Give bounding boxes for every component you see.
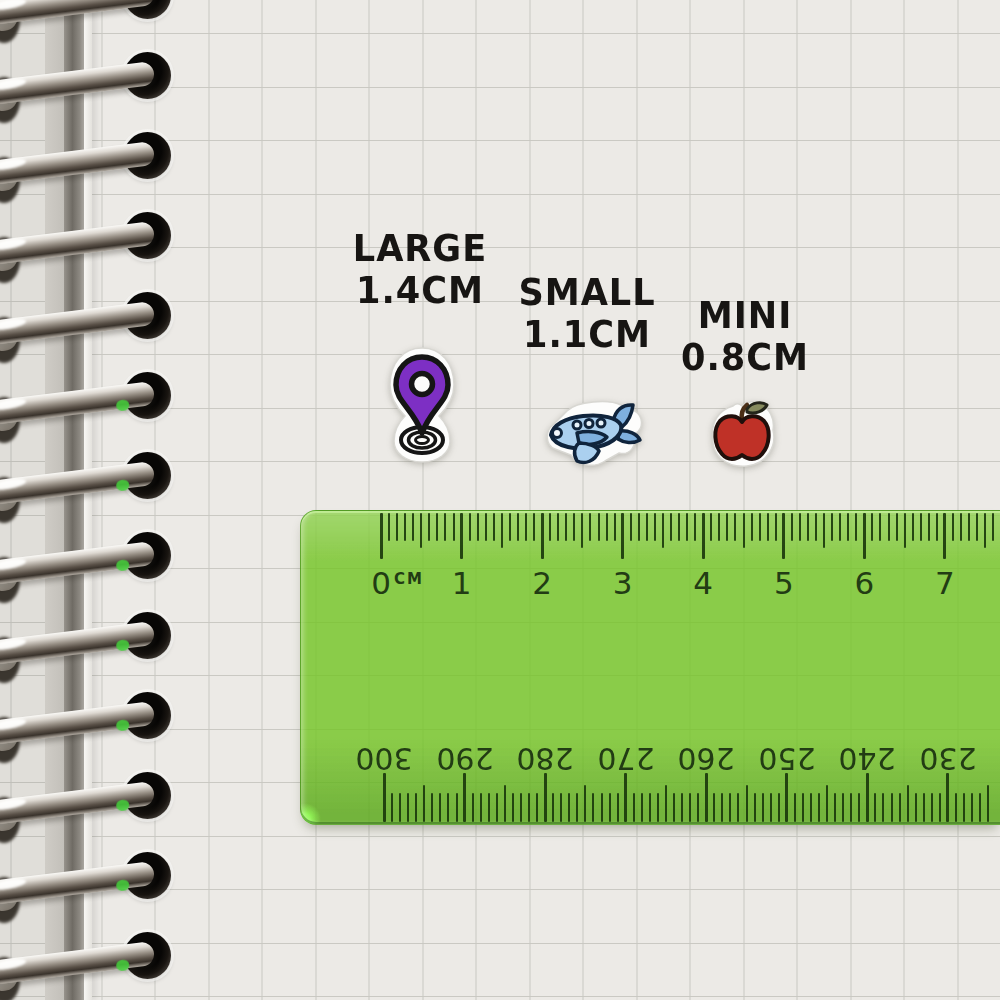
ring-glint xyxy=(0,477,27,492)
ring-glint xyxy=(0,237,27,252)
ruler-mm-number: 250 xyxy=(747,741,827,776)
ruler-tick-mm xyxy=(915,793,917,822)
ruler-tick-mm xyxy=(879,513,881,541)
ring-glint xyxy=(0,157,27,172)
ruler-tick-mm xyxy=(472,793,474,822)
ruler-tick-mm xyxy=(589,513,591,541)
ruler-tick-mm xyxy=(904,513,906,548)
ruler-tick-mm xyxy=(694,513,696,541)
ruler-tick-mm xyxy=(807,513,809,541)
ruler-tick-mm xyxy=(552,793,554,822)
ruler-tick-mm xyxy=(955,793,957,822)
ruler-tick-mm xyxy=(654,513,656,541)
ruler-tick-mm xyxy=(971,793,973,822)
ruler-tick-mm xyxy=(960,513,962,541)
ruler-tick-cm xyxy=(544,773,547,822)
ruler-tick-cm xyxy=(380,513,383,559)
ruler-tick-cm xyxy=(782,513,785,559)
ruler-tick-mm xyxy=(536,793,538,822)
ruler-tick-mm xyxy=(976,513,978,541)
ruler-tick-cm xyxy=(785,773,788,822)
ruler-tick-mm xyxy=(520,793,522,822)
ruler-cm-number: 0 xyxy=(351,565,411,601)
ring-green-reflection xyxy=(116,959,130,972)
ruler-tick-mm xyxy=(839,513,841,541)
ruler-tick-mm xyxy=(689,793,691,822)
ruler-tick-mm xyxy=(415,793,417,822)
ruler-tick-mm xyxy=(826,785,828,822)
ruler-tick-mm xyxy=(581,513,583,548)
apple-icon xyxy=(709,398,775,471)
ruler-tick-mm xyxy=(923,793,925,822)
ruler-tick-mm xyxy=(657,793,659,822)
ruler-tick-mm xyxy=(584,785,586,822)
ruler-tick-mm xyxy=(630,513,632,541)
ruler-tick-mm xyxy=(762,793,764,822)
ruler-tick-mm xyxy=(431,793,433,822)
ruler-tick-mm xyxy=(601,793,603,822)
ruler-cm-number: 1 xyxy=(432,565,492,601)
ruler-tick-mm xyxy=(896,513,898,541)
spiral-binding xyxy=(0,0,190,1000)
ruler-tick-mm xyxy=(882,793,884,822)
ruler-tick-mm xyxy=(509,513,511,541)
ruler-tick-mm xyxy=(391,793,393,822)
ruler-tick-mm xyxy=(528,793,530,822)
ruler-tick-mm xyxy=(746,785,748,822)
ring-green-reflection xyxy=(116,799,130,812)
ruler-tick-mm xyxy=(598,513,600,541)
ring-green-reflection xyxy=(116,399,130,412)
ruler-tick-mm xyxy=(439,793,441,822)
ruler-tick-mm xyxy=(850,793,852,822)
ruler-tick-mm xyxy=(968,513,970,541)
ruler-tick-mm xyxy=(399,793,401,822)
ruler-tick-mm xyxy=(423,785,425,822)
ruler-cm-number: 5 xyxy=(754,565,814,601)
ruler-tick-mm xyxy=(713,793,715,822)
ruler-tick-mm xyxy=(810,793,812,822)
ruler-tick-mm xyxy=(920,513,922,541)
notebook-photo: LARGE 1.4CM SMALL 1.1CM MINI 0.8CM xyxy=(0,0,1000,1000)
ruler-tick-mm xyxy=(754,793,756,822)
ruler-mm-number: 230 xyxy=(908,741,988,776)
ruler-tick-mm xyxy=(646,513,648,541)
ring-glint xyxy=(0,317,27,332)
ruler-tick-mm xyxy=(665,785,667,822)
ruler-tick-mm xyxy=(963,793,965,822)
ring-glint xyxy=(0,0,27,12)
ruler-tick-mm xyxy=(729,793,731,822)
ruler-tick-mm xyxy=(697,793,699,822)
ruler-tick-mm xyxy=(592,793,594,822)
ring-glint xyxy=(0,957,27,972)
ruler-tick-mm xyxy=(501,513,503,548)
ruler-tick-mm xyxy=(681,793,683,822)
ruler-tick-mm xyxy=(412,513,414,541)
label-large-size: 1.4CM xyxy=(335,270,506,312)
ruler-tick-mm xyxy=(649,793,651,822)
ruler-tick-mm xyxy=(842,793,844,822)
ring-glint xyxy=(0,637,27,652)
label-mini: MINI 0.8CM xyxy=(660,295,831,379)
ruler-tick-cm xyxy=(460,513,463,559)
ring-glint xyxy=(0,797,27,812)
ruler-tick-mm xyxy=(931,793,933,822)
ruler-tick-mm xyxy=(525,513,527,541)
ruler-tick-mm xyxy=(638,513,640,541)
ruler-tick-mm xyxy=(533,513,535,541)
ring-glint xyxy=(0,877,27,892)
ruler-tick-mm xyxy=(710,513,712,541)
ruler-tick-mm xyxy=(512,793,514,822)
ruler-tick-mm xyxy=(907,785,909,822)
ruler-tick-mm xyxy=(928,513,930,541)
ruler-tick-mm xyxy=(734,513,736,541)
ruler-tick-mm xyxy=(456,793,458,822)
ruler-tick-mm xyxy=(899,793,901,822)
ruler-tick-mm xyxy=(778,793,780,822)
ruler-tick-mm xyxy=(496,793,498,822)
ruler-tick-mm xyxy=(743,513,745,548)
ruler-tick-mm xyxy=(633,793,635,822)
ruler-tick-mm xyxy=(751,513,753,541)
ruler-tick-mm xyxy=(617,793,619,822)
ruler-tick-mm xyxy=(388,513,390,541)
airplane-icon xyxy=(543,399,643,467)
ruler-mm-number: 260 xyxy=(666,741,746,776)
ruler-tick-mm xyxy=(453,513,455,541)
ruler-cm-number: 7 xyxy=(915,565,975,601)
ruler-tick-mm xyxy=(606,513,608,541)
ruler-tick-mm xyxy=(874,793,876,822)
ruler-tick-mm xyxy=(888,513,890,541)
label-large: LARGE 1.4CM xyxy=(335,228,506,312)
ruler-tick-mm xyxy=(871,513,873,541)
ruler-tick-mm xyxy=(493,513,495,541)
ruler-cm-number: 3 xyxy=(593,565,653,601)
ruler-tick-mm xyxy=(770,793,772,822)
ruler-tick-cm xyxy=(621,513,624,559)
ring-glint xyxy=(0,557,27,572)
ruler-tick-mm xyxy=(428,513,430,541)
ruler-tick-mm xyxy=(952,513,954,541)
ruler-tick-cm xyxy=(866,773,869,822)
ruler-tick-mm xyxy=(670,513,672,541)
ruler-cm-number: 6 xyxy=(834,565,894,601)
ruler-mm-number: 240 xyxy=(827,741,907,776)
ruler-tick-mm xyxy=(404,513,406,541)
ruler-tick-mm xyxy=(477,513,479,541)
ring-green-reflection xyxy=(116,479,130,492)
ring-green-reflection xyxy=(116,559,130,572)
ruler-tick-mm xyxy=(815,513,817,541)
ruler-tick-mm xyxy=(662,513,664,548)
ruler: CM 01234567300290280270260250240230 xyxy=(300,510,1000,825)
ruler-tick-mm xyxy=(673,793,675,822)
label-small-size: 1.1CM xyxy=(502,314,673,356)
ruler-tick-mm xyxy=(759,513,761,541)
label-large-name: LARGE xyxy=(335,228,506,270)
ruler-tick-mm xyxy=(794,793,796,822)
ruler-tick-cm xyxy=(863,513,866,559)
ring-green-reflection xyxy=(116,719,130,732)
ruler-tick-mm xyxy=(823,513,825,548)
ring-glint xyxy=(0,77,27,92)
ruler-tick-mm xyxy=(641,793,643,822)
ruler-tick-mm xyxy=(799,513,801,541)
ruler-tick-cm xyxy=(705,773,708,822)
ruler-tick-mm xyxy=(485,513,487,541)
ruler-tick-mm xyxy=(447,793,449,822)
ruler-tick-mm xyxy=(791,513,793,541)
ring-green-reflection xyxy=(116,879,130,892)
ruler-tick-mm xyxy=(775,513,777,541)
ruler-tick-mm xyxy=(831,513,833,541)
ruler-tick-mm xyxy=(565,513,567,541)
ruler-tick-mm xyxy=(469,513,471,541)
ruler-tick-mm xyxy=(818,793,820,822)
ruler-tick-mm xyxy=(858,793,860,822)
label-small-name: SMALL xyxy=(502,272,673,314)
ruler-mm-number: 280 xyxy=(505,741,585,776)
ruler-tick-mm xyxy=(979,793,981,822)
ruler-tick-cm xyxy=(541,513,544,559)
ruler-tick-mm xyxy=(912,513,914,541)
ruler-tick-mm xyxy=(678,513,680,541)
ruler-tick-mm xyxy=(987,785,989,822)
ruler-tick-mm xyxy=(767,513,769,541)
label-small: SMALL 1.1CM xyxy=(502,272,673,356)
ruler-tick-mm xyxy=(737,793,739,822)
ruler-tick-mm xyxy=(568,793,570,822)
ruler-tick-cm xyxy=(383,773,386,822)
ruler-mm-number: 290 xyxy=(425,741,505,776)
ruler-tick-mm xyxy=(834,793,836,822)
ring-glint xyxy=(0,717,27,732)
ruler-tick-cm xyxy=(946,773,949,822)
ruler-tick-mm xyxy=(891,793,893,822)
ruler-tick-mm xyxy=(488,793,490,822)
location-pin-icon xyxy=(386,344,458,466)
ruler-tick-mm xyxy=(802,793,804,822)
ring-glint xyxy=(0,397,27,412)
ruler-tick-mm xyxy=(573,513,575,541)
ruler-tick-mm xyxy=(992,513,994,541)
ruler-tick-mm xyxy=(614,513,616,541)
ruler-tick-mm xyxy=(576,793,578,822)
label-mini-name: MINI xyxy=(660,295,831,337)
ruler-tick-mm xyxy=(984,513,986,548)
ruler-tick-mm xyxy=(718,513,720,541)
ruler-tick-mm xyxy=(936,513,938,541)
ruler-tick-cm xyxy=(702,513,705,559)
ruler-tick-cm xyxy=(943,513,946,559)
page-edge-band xyxy=(45,0,65,1000)
ruler-tick-mm xyxy=(407,793,409,822)
ruler-tick-mm xyxy=(609,793,611,822)
ruler-tick-mm xyxy=(939,793,941,822)
ruler-tick-cm xyxy=(624,773,627,822)
ruler-cm-number: 4 xyxy=(673,565,733,601)
ring-green-reflection xyxy=(116,639,130,652)
ruler-mm-number: 270 xyxy=(586,741,666,776)
ruler-tick-mm xyxy=(686,513,688,541)
ruler-tick-mm xyxy=(855,513,857,541)
label-mini-size: 0.8CM xyxy=(660,337,831,379)
ruler-tick-mm xyxy=(436,513,438,541)
ruler-tick-mm xyxy=(721,793,723,822)
ruler-tick-mm xyxy=(504,785,506,822)
ruler-tick-mm xyxy=(549,513,551,541)
ruler-tick-mm xyxy=(480,793,482,822)
ruler-cm-number: 2 xyxy=(512,565,572,601)
ruler-tick-mm xyxy=(560,793,562,822)
ruler-tick-mm xyxy=(557,513,559,541)
ruler-tick-cm xyxy=(463,773,466,822)
ruler-mm-number: 300 xyxy=(344,741,424,776)
ruler-tick-mm xyxy=(726,513,728,541)
ruler-tick-mm xyxy=(444,513,446,541)
ruler-tick-mm xyxy=(420,513,422,548)
ruler-tick-mm xyxy=(396,513,398,541)
ruler-tick-mm xyxy=(847,513,849,541)
ruler-tick-mm xyxy=(517,513,519,541)
